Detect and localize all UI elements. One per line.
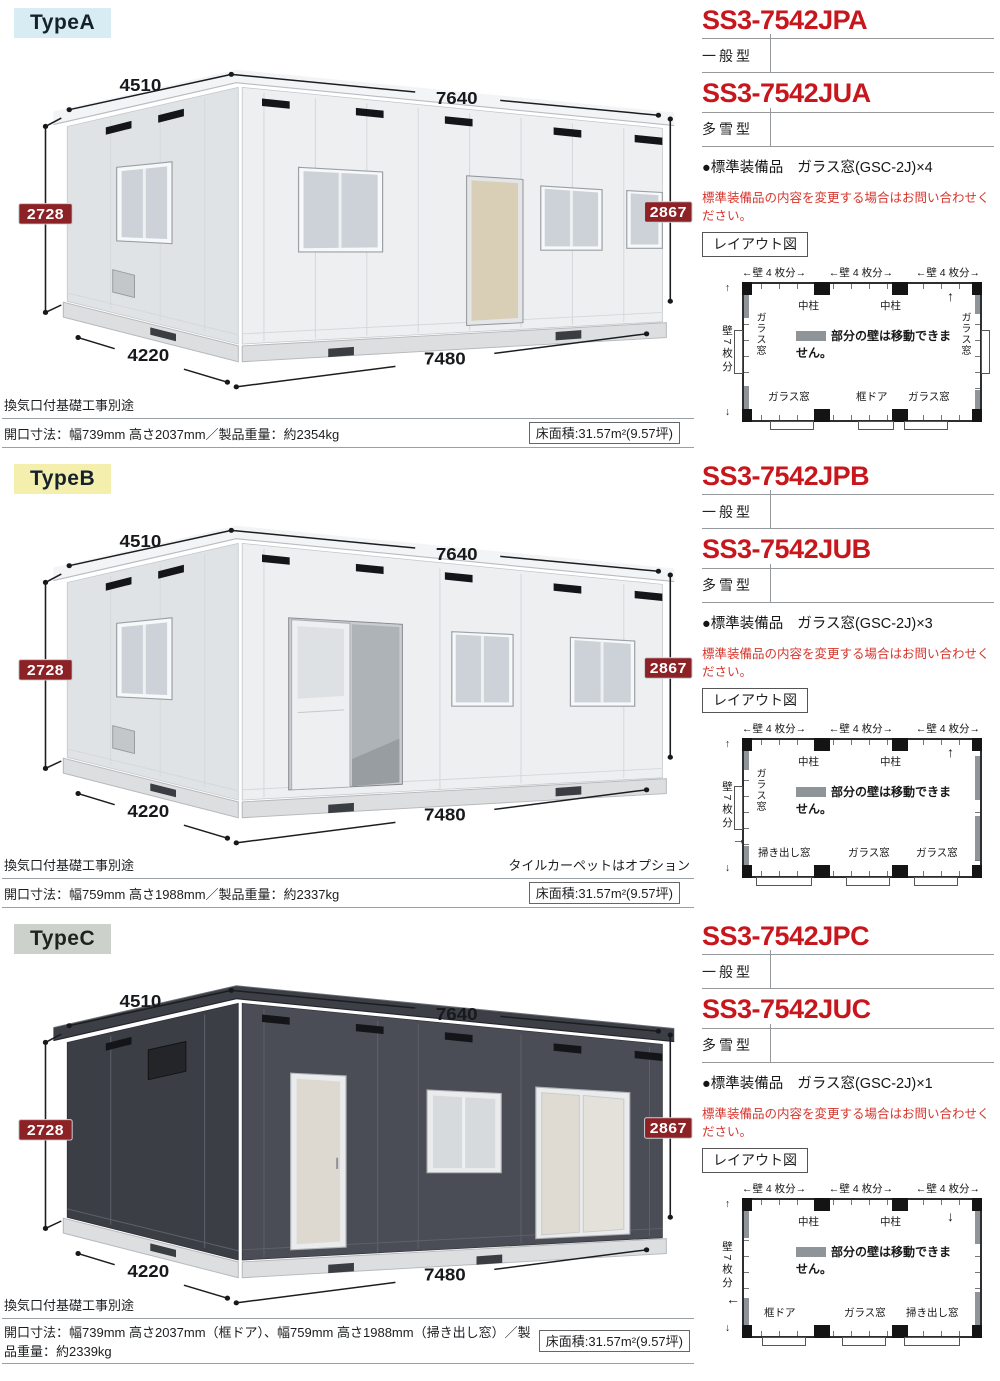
warning-note: 標準装備品の内容を変更する場合はお問い合わせください。 (702, 189, 994, 225)
dim-depth: 4510 (120, 75, 162, 95)
bottom-opening-label: ガラス窓 (908, 389, 950, 404)
open-sliding-door (289, 618, 403, 790)
gray-swatch (796, 787, 826, 797)
side-window (117, 162, 172, 244)
window-symbol (756, 877, 812, 886)
svg-text:2728: 2728 (27, 662, 64, 678)
section-typeA: TypeA (0, 0, 1000, 456)
section-typeB: TypeB (0, 456, 1000, 916)
product-info-typeC: SS3-7542JPC 一般型 SS3-7542JUC 多雪型 ●標準装備品ガラ… (702, 916, 994, 1381)
height-badge-right: 2867 (645, 658, 692, 678)
floor-area-box: 床面積:31.57m²(9.57坪) (539, 1330, 690, 1352)
top-arrow-icon: ↑ (947, 288, 954, 304)
height-badge-left: 2728 (19, 204, 72, 224)
bottom-opening-label: 框ドア (764, 1305, 796, 1320)
center-pillar-label: 中柱 (798, 754, 819, 769)
layout-figure-button[interactable]: レイアウト図 (702, 688, 808, 713)
top-arrow-icon: ↓ (947, 1208, 954, 1224)
front-door (291, 1073, 346, 1250)
center-pillar-label: 中柱 (880, 1214, 901, 1229)
building-illustration-typeC: 4510 7640 4220 7480 2728 2867 (2, 942, 694, 1314)
foundation-note: 換気口付基礎工事別途 (4, 395, 134, 414)
door-symbol (762, 1337, 806, 1346)
building-illustration-typeB: 4510 7640 4220 7480 2728 2867 (2, 482, 694, 854)
dim-bottom-depth: 4220 (127, 1260, 169, 1280)
spec-block-typeB: 換気口付基礎工事別途 タイルカーペットはオプション 開口寸法：幅759mm 高さ… (2, 855, 694, 908)
standard-equipment: ●標準装備品ガラス窓(GSC-2J)×3 (702, 612, 994, 633)
floor-area-box: 床面積:31.57m²(9.57坪) (529, 882, 680, 904)
front-window-2 (570, 637, 634, 706)
wall-count-label: ↑ 壁7枚分 ↓ (720, 1198, 735, 1334)
svg-text:2867: 2867 (650, 205, 687, 221)
dim-bottom-width: 7480 (424, 348, 466, 368)
dim-width: 7640 (436, 1004, 478, 1024)
section-typeC: TypeC (0, 916, 1000, 1368)
window-symbol (734, 786, 743, 830)
product-code: SS3-7542JPB (702, 456, 994, 495)
dim-depth: 4510 (120, 991, 162, 1011)
product-code: SS3-7542JPC (702, 916, 994, 955)
fixed-wall-segment (975, 816, 980, 860)
spec-block-typeA: 換気口付基礎工事別途 開口寸法：幅739mm 高さ2037mm／製品重量：約23… (2, 395, 694, 448)
svg-text:2728: 2728 (27, 1122, 64, 1138)
sliding-door (536, 1087, 630, 1239)
bottom-opening-label: ガラス窓 (768, 389, 810, 404)
left-window-label: ガラス窓 (752, 312, 767, 356)
building-body (53, 70, 674, 362)
floor-area-box: 床面積:31.57m²(9.57坪) (529, 422, 680, 444)
standard-equipment: ●標準装備品ガラス窓(GSC-2J)×4 (702, 156, 994, 177)
option-note: タイルカーペットはオプション (508, 855, 690, 874)
front-window (427, 1090, 501, 1173)
dim-depth: 4510 (120, 531, 162, 551)
side-window (117, 618, 172, 700)
variant-label: 一般型 (702, 46, 753, 66)
up-arrow-icon: ↑ (725, 282, 730, 294)
up-arrow-icon: ↑ (725, 738, 730, 750)
dim-bottom-depth: 4220 (127, 800, 169, 820)
building-illustration-typeA: 4510 7640 4220 7480 2728 2867 (2, 26, 694, 398)
window-symbol (914, 877, 958, 886)
window-symbol (846, 877, 890, 886)
product-code: SS3-7542JUB (702, 529, 994, 568)
bottom-opening-label: ガラス窓 (916, 845, 958, 860)
foundation-note: 換気口付基礎工事別途 (4, 1295, 134, 1314)
floorplan-rect: 中柱 中柱 部分の壁は移動できません。 ガラス窓 掃き出し窓 ガラス窓 ガラス窓… (742, 738, 982, 878)
building-svg: 4510 7640 4220 7480 2728 2867 (2, 942, 694, 1314)
svg-text:2867: 2867 (650, 661, 687, 677)
variant-row: 一般型 (702, 39, 994, 73)
variant-row: 多雪型 (702, 113, 994, 147)
door-symbol (858, 421, 894, 430)
variant-label: 一般型 (702, 502, 753, 522)
wall-span-labels: ←壁 4 枚分→ ←壁 4 枚分→ ←壁 4 枚分→ (742, 265, 980, 280)
front-window-1 (299, 167, 383, 252)
floorplan-diagram-typeC: ←壁 4 枚分→ ←壁 4 枚分→ ←壁 4 枚分→ ↑ 壁7枚分 ↓ ← 中柱 (702, 1181, 994, 1381)
dim-bottom-width: 7480 (424, 804, 466, 824)
variant-label: 一般型 (702, 962, 753, 982)
opening-spec: 開口寸法：幅739mm 高さ2037mm／製品重量：約2354kg (4, 424, 339, 443)
center-pillar-label: 中柱 (880, 754, 901, 769)
standard-equipment: ●標準装備品ガラス窓(GSC-2J)×1 (702, 1072, 994, 1093)
down-arrow-icon: ↓ (725, 862, 730, 874)
front-window-2 (541, 186, 602, 250)
bottom-opening-label: 框ドア (856, 389, 888, 404)
building-body (53, 986, 674, 1278)
spec-block-typeC: 換気口付基礎工事別途 開口寸法：幅739mm 高さ2037mm（框ドア）、幅75… (2, 1295, 694, 1364)
floorplan-diagram-typeB: ←壁 4 枚分→ ←壁 4 枚分→ ←壁 4 枚分→ ↑ 壁7枚分 ↓ → 中柱 (702, 721, 994, 921)
gray-swatch (796, 331, 826, 341)
bottom-opening-label: 掃き出し窓 (758, 845, 811, 860)
center-pillar-label: 中柱 (798, 298, 819, 313)
dim-width: 7640 (436, 544, 478, 564)
product-info-typeA: SS3-7542JPA 一般型 SS3-7542JUA 多雪型 ●標準装備品ガラ… (702, 0, 994, 465)
window-symbol (734, 330, 743, 374)
product-code: SS3-7542JUC (702, 989, 994, 1028)
fixed-wall-legend: 部分の壁は移動できません。 (796, 328, 958, 362)
down-arrow-icon: ↓ (725, 406, 730, 418)
wall-span-labels: ←壁 4 枚分→ ←壁 4 枚分→ ←壁 4 枚分→ (742, 721, 980, 736)
layout-figure-button[interactable]: レイアウト図 (702, 232, 808, 257)
center-pillar-label: 中柱 (880, 298, 901, 313)
dim-bottom-depth: 4220 (127, 344, 169, 364)
bottom-opening-label: 掃き出し窓 (906, 1305, 959, 1320)
up-arrow-icon: ↑ (725, 1198, 730, 1210)
bottom-opening-label: ガラス窓 (848, 845, 890, 860)
front-door (467, 176, 523, 326)
fixed-wall-segment (975, 756, 980, 800)
center-pillar-label: 中柱 (798, 1214, 819, 1229)
floorplan-rect: 中柱 中柱 部分の壁は移動できません。 框ドア ガラス窓 掃き出し窓 ↓ (742, 1198, 982, 1338)
svg-text:2728: 2728 (27, 206, 64, 222)
variant-row: 多雪型 (702, 569, 994, 603)
height-badge-left: 2728 (19, 660, 72, 680)
warning-note: 標準装備品の内容を変更する場合はお問い合わせください。 (702, 1105, 994, 1141)
bottom-opening-label: ガラス窓 (844, 1305, 886, 1320)
height-badge-right: 2867 (645, 202, 692, 222)
window-symbol (981, 330, 990, 374)
opening-spec: 開口寸法：幅739mm 高さ2037mm（框ドア）、幅759mm 高さ1988m… (4, 1322, 539, 1360)
wall-span-labels: ←壁 4 枚分→ ←壁 4 枚分→ ←壁 4 枚分→ (742, 1181, 980, 1196)
gray-swatch (796, 1247, 826, 1257)
window-symbol (842, 1337, 886, 1346)
height-badge-left: 2728 (19, 1120, 72, 1140)
variant-label: 多雪型 (702, 119, 753, 139)
fixed-wall-legend: 部分の壁は移動できません。 (796, 784, 958, 818)
fixed-wall-legend: 部分の壁は移動できません。 (796, 1244, 958, 1278)
variant-label: 多雪型 (702, 575, 753, 595)
opening-spec: 開口寸法：幅759mm 高さ1988mm／製品重量：約2337kg (4, 884, 339, 903)
product-code: SS3-7542JUA (702, 73, 994, 112)
window-symbol (904, 1337, 960, 1346)
warning-note: 標準装備品の内容を変更する場合はお問い合わせください。 (702, 645, 994, 681)
foundation-note: 換気口付基礎工事別途 (4, 855, 134, 874)
building-svg: 4510 7640 4220 7480 2728 2867 (2, 26, 694, 398)
left-window-label: ガラス窓 (752, 768, 767, 812)
floorplan-diagram-typeA: ←壁 4 枚分→ ←壁 4 枚分→ ←壁 4 枚分→ ↑ 壁7枚分 ↓ → 中柱 (702, 265, 994, 465)
variant-row: 一般型 (702, 495, 994, 529)
right-window-label: ガラス窓 (957, 312, 972, 356)
top-arrow-icon: ↑ (947, 744, 954, 760)
wall-count-label: ↑ 壁7枚分 ↓ (720, 738, 735, 874)
variant-row: 一般型 (702, 955, 994, 989)
window-symbol (904, 421, 948, 430)
product-info-typeB: SS3-7542JPB 一般型 SS3-7542JUB 多雪型 ●標準装備品ガラ… (702, 456, 994, 921)
building-body (53, 526, 674, 818)
wall-count-label: ↑ 壁7枚分 ↓ (720, 282, 735, 418)
catalog-page: { "sections": [ { "id": "A", "type_label… (0, 0, 1000, 1368)
front-window-1 (452, 632, 513, 706)
dim-bottom-width: 7480 (424, 1264, 466, 1284)
height-badge-right: 2867 (645, 1118, 692, 1138)
variant-row: 多雪型 (702, 1029, 994, 1063)
svg-text:2867: 2867 (650, 1121, 687, 1137)
dim-width: 7640 (436, 88, 478, 108)
product-code: SS3-7542JPA (702, 0, 994, 39)
building-svg: 4510 7640 4220 7480 2728 2867 (2, 482, 694, 854)
layout-figure-button[interactable]: レイアウト図 (702, 1148, 808, 1173)
side-arrow-icon: ← (726, 1291, 740, 1307)
window-symbol (770, 421, 814, 430)
variant-label: 多雪型 (702, 1035, 753, 1055)
down-arrow-icon: ↓ (725, 1322, 730, 1334)
floorplan-rect: 中柱 中柱 部分の壁は移動できません。 ガラス窓 ガラス窓 ガラス窓 框ドア ガ… (742, 282, 982, 422)
